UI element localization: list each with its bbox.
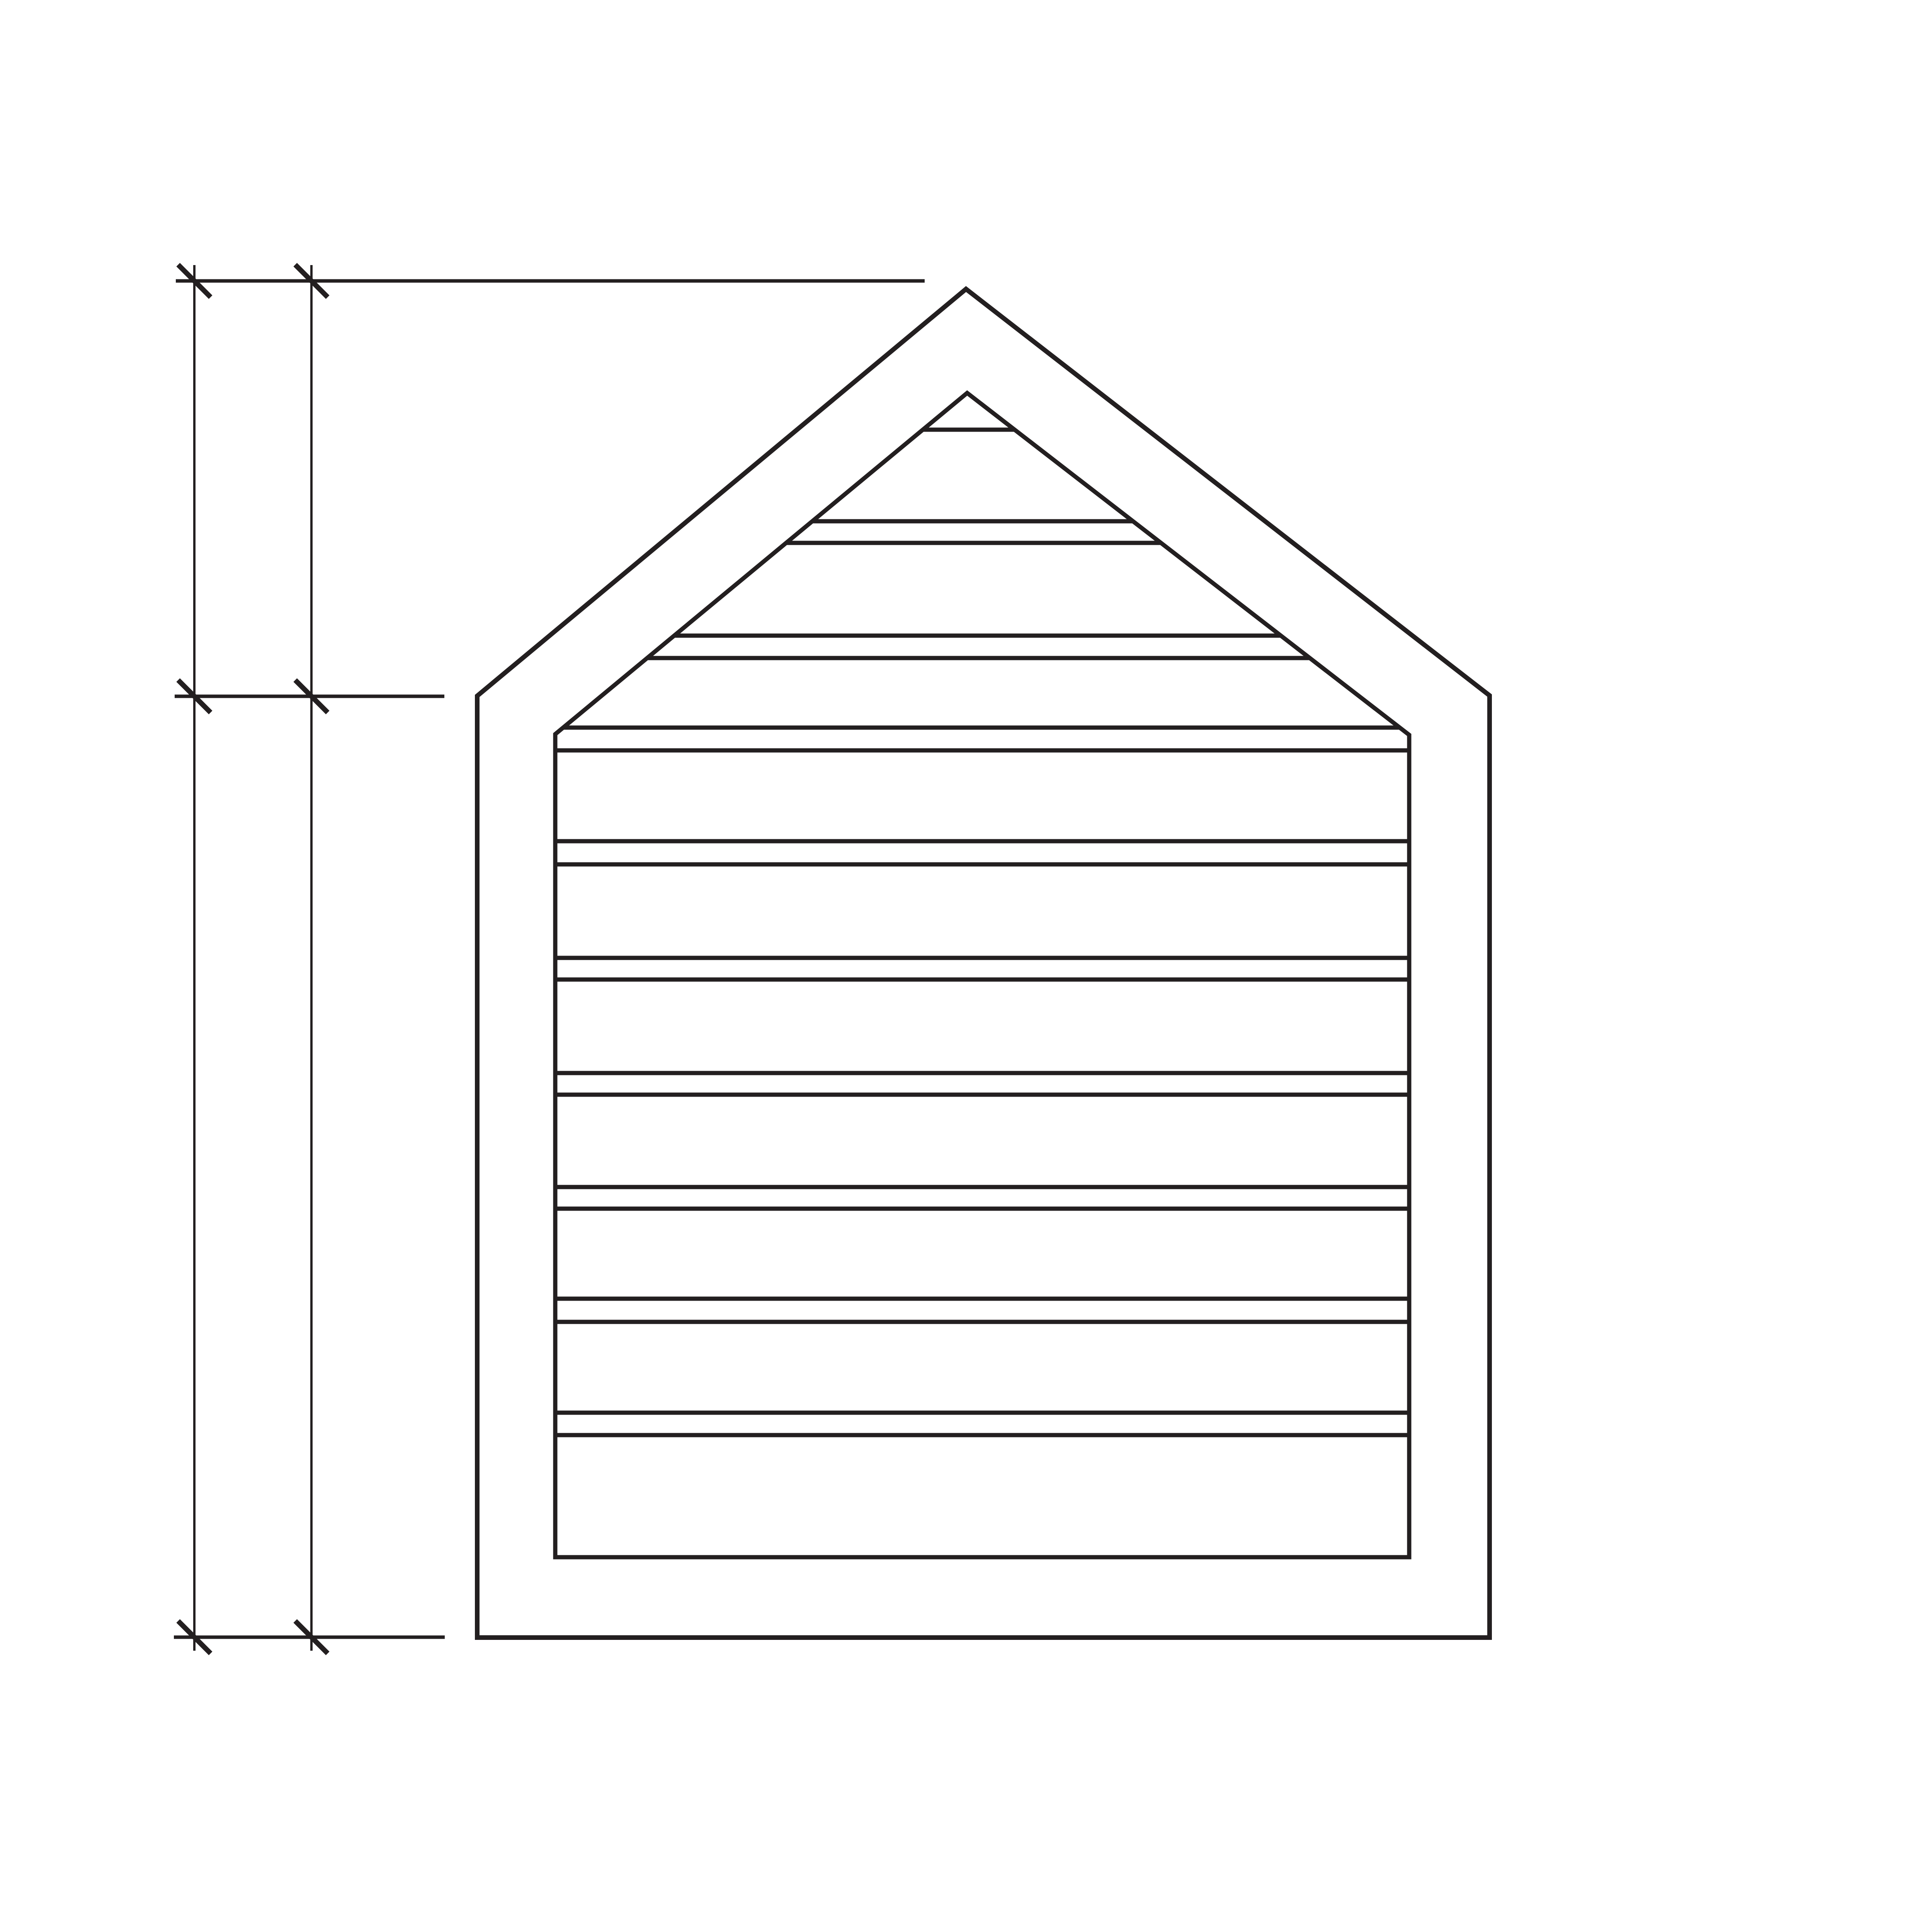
drawing-canvas [0, 0, 1932, 1932]
gable-vent-elevation-drawing [0, 0, 1932, 1932]
louver-slats [549, 430, 1416, 1435]
vent-inner-frame [555, 393, 1409, 1557]
